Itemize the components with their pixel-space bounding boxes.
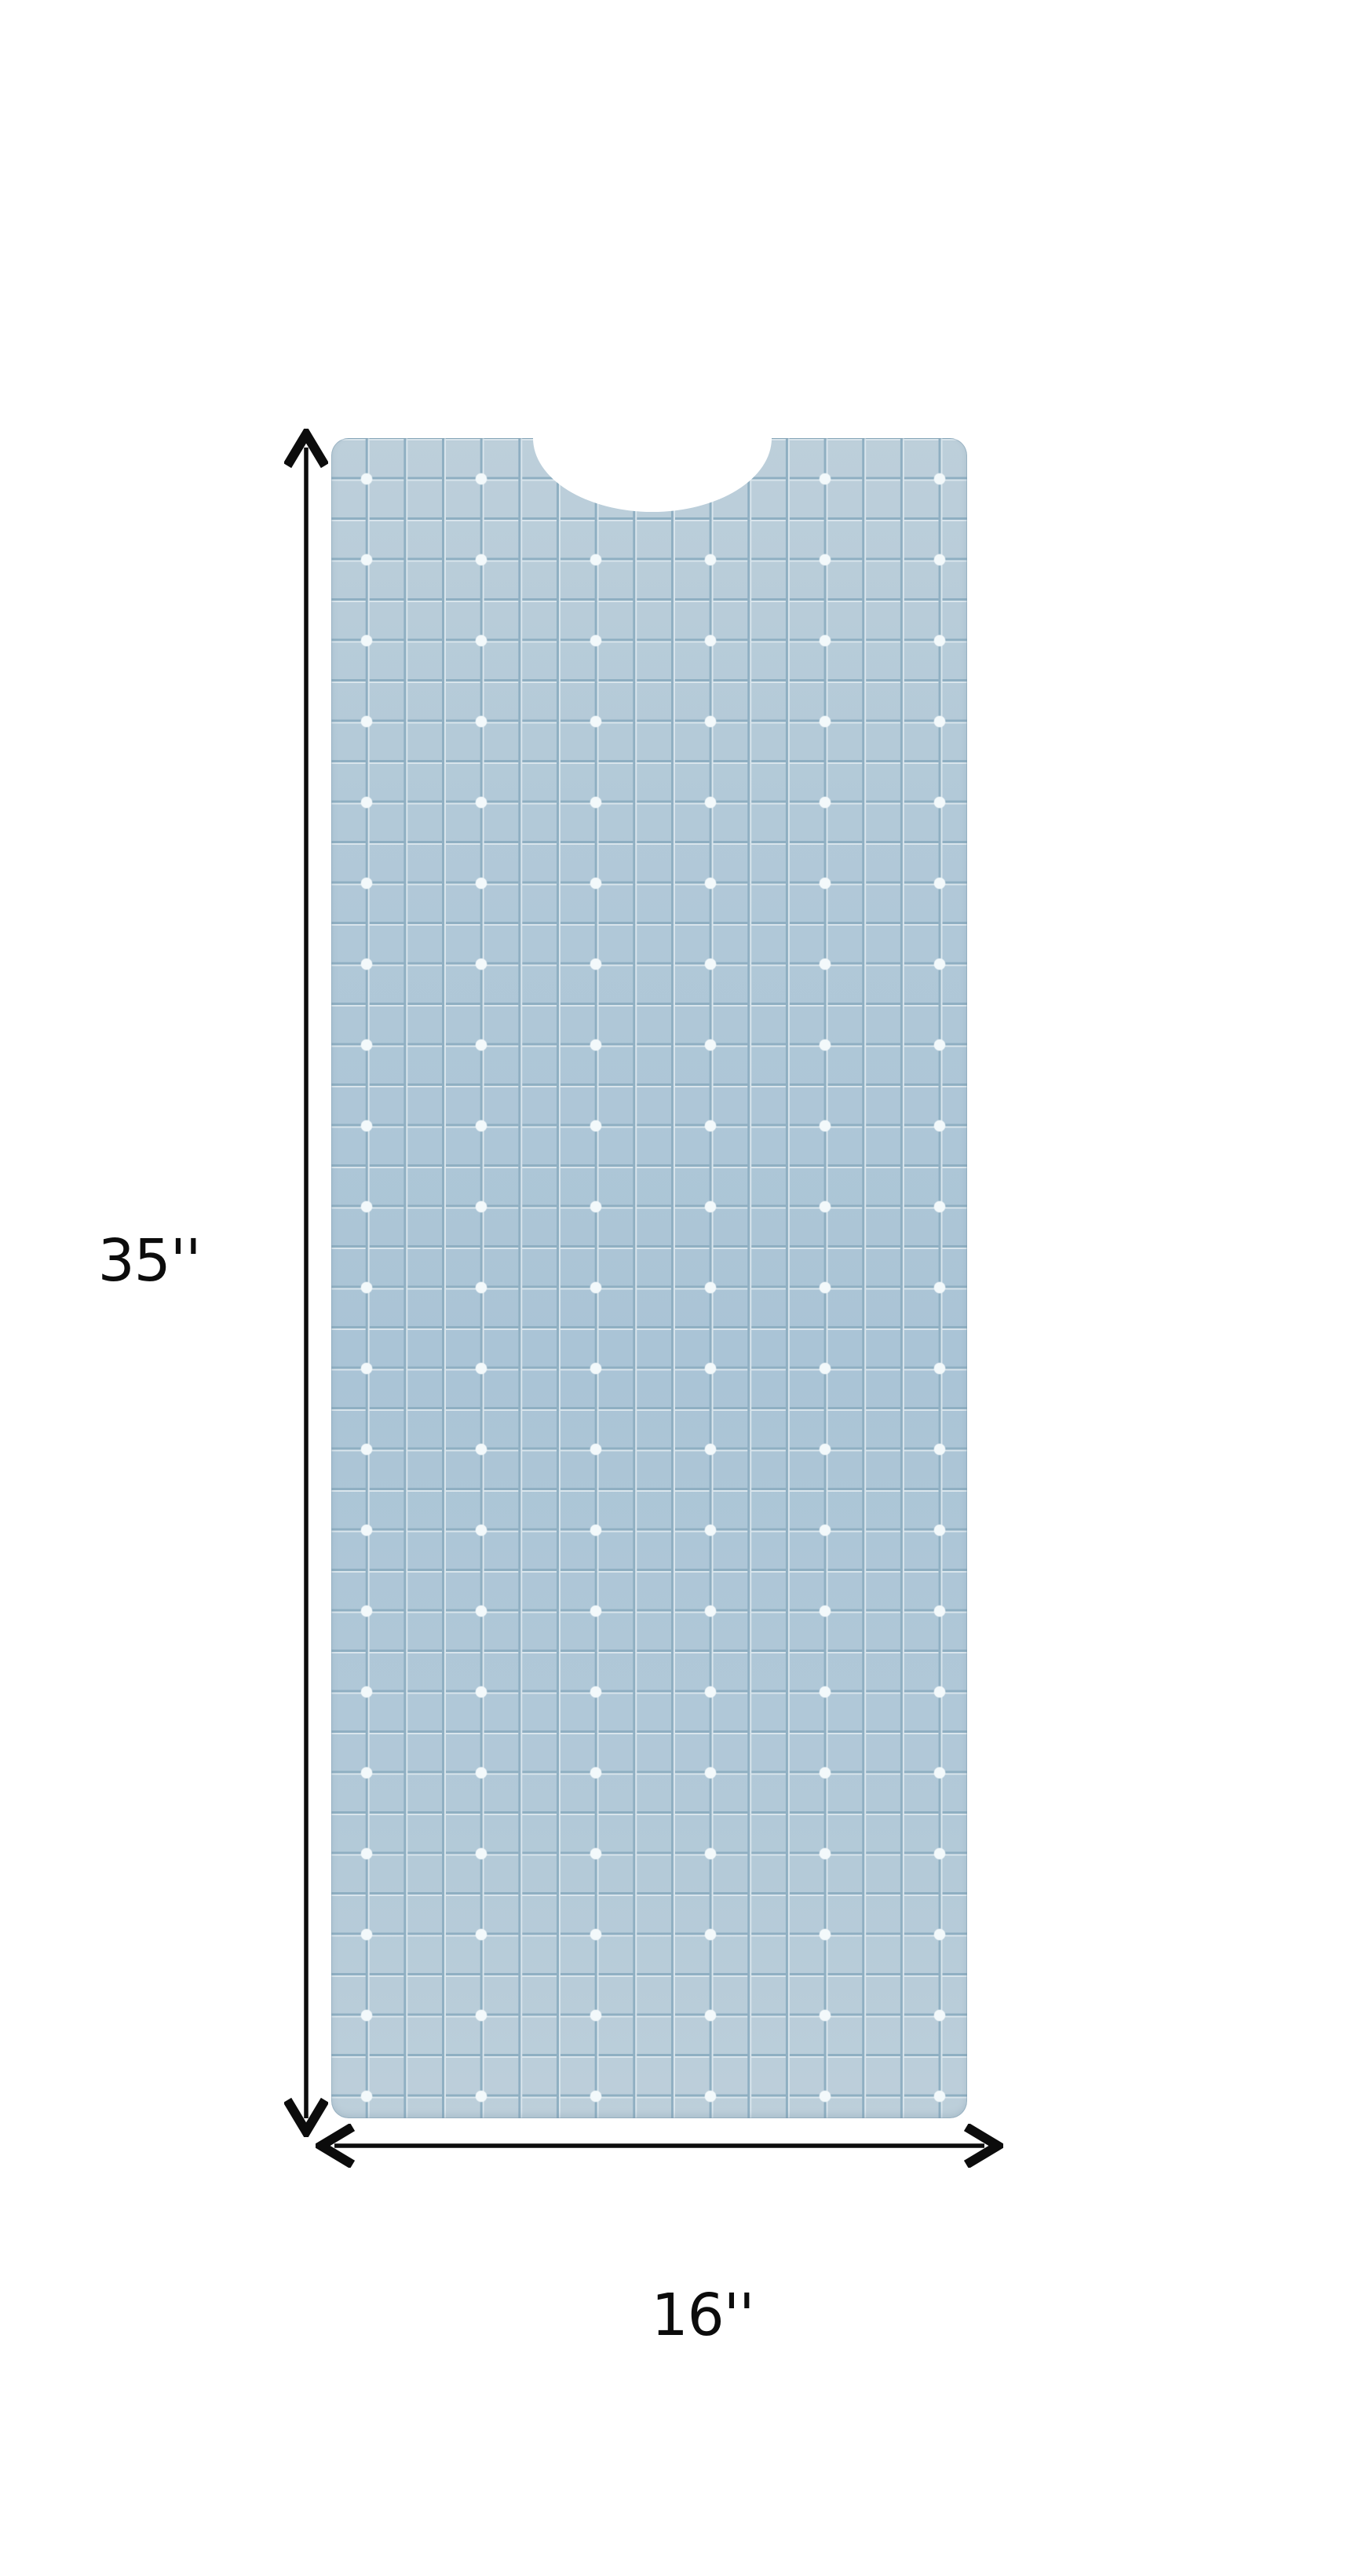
mat-notch-cutout (533, 438, 772, 512)
height-dimension-arrow (284, 429, 328, 2137)
width-dimension-arrow (316, 2124, 1003, 2168)
height-dimension-label: 35'' (71, 1227, 228, 1295)
bath-mat-image (331, 438, 967, 2118)
product-dimension-photo: 35'' 16'' (0, 0, 1351, 2576)
width-dimension-label: 16'' (624, 2282, 781, 2350)
